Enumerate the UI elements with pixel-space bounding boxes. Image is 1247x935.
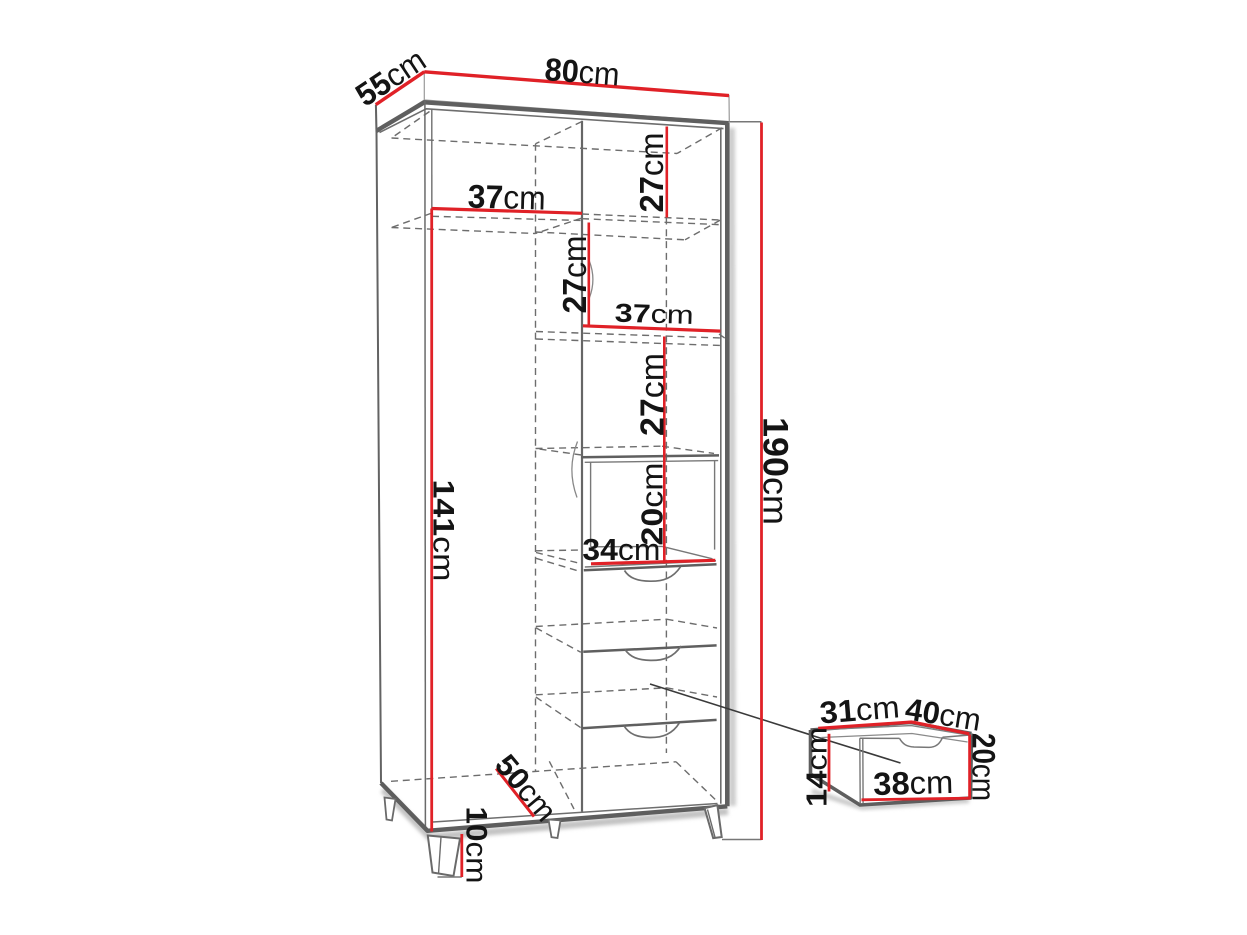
svg-text:27cm: 27cm bbox=[634, 353, 671, 436]
svg-text:10cm: 10cm bbox=[460, 807, 493, 884]
svg-text:37cm: 37cm bbox=[614, 298, 694, 330]
svg-text:31cm: 31cm bbox=[818, 689, 900, 730]
svg-text:20cm: 20cm bbox=[966, 733, 1002, 801]
svg-text:34cm: 34cm bbox=[582, 532, 660, 567]
svg-text:37cm: 37cm bbox=[467, 178, 546, 217]
svg-text:38cm: 38cm bbox=[873, 764, 954, 802]
svg-text:141cm: 141cm bbox=[427, 480, 460, 582]
svg-text:190cm: 190cm bbox=[756, 417, 795, 525]
svg-text:27cm: 27cm bbox=[634, 133, 671, 213]
svg-text:80cm: 80cm bbox=[543, 51, 620, 93]
svg-text:14cm: 14cm bbox=[802, 727, 834, 807]
svg-text:27cm: 27cm bbox=[556, 236, 593, 314]
